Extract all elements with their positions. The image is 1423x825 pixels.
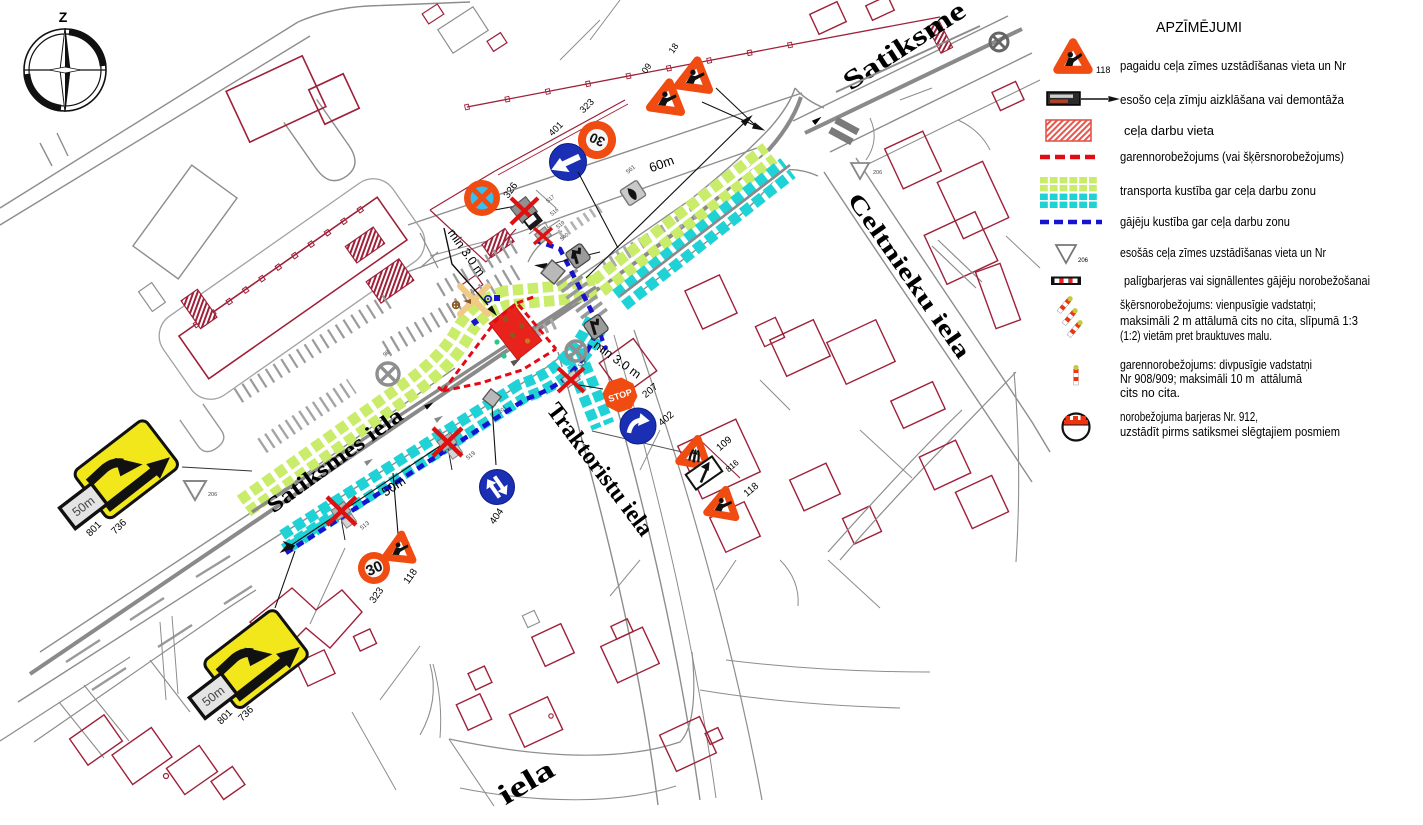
svg-text:maksimāli 2 m attālumā cits no: maksimāli 2 m attālumā cits no cita, slī…: [1120, 313, 1358, 328]
svg-text:uzstādīt pirms satiksmei slēgt: uzstādīt pirms satiksmei slēgtajiem posm…: [1120, 424, 1340, 439]
svg-text:gājēju kustība gar ceļa darbu: gājēju kustība gar ceļa darbu zonu: [1120, 214, 1290, 229]
svg-text:esošo ceļa zīmju aizklāšana va: esošo ceļa zīmju aizklāšana vai demontāž…: [1120, 92, 1345, 107]
svg-text:Z: Z: [59, 9, 68, 25]
svg-text:ceļa darbu vieta: ceļa darbu vieta: [1124, 123, 1215, 138]
svg-text:206: 206: [208, 492, 217, 498]
svg-text:norobežojuma barjeras Nr. 912,: norobežojuma barjeras Nr. 912,: [1120, 409, 1258, 424]
svg-text:cits no cita.: cits no cita.: [1120, 385, 1180, 400]
svg-text:garennorobežojums (vai šķērsno: garennorobežojums (vai šķērsnorobežojums…: [1120, 149, 1344, 164]
svg-text:pagaidu ceļa zīmes uzstādīšana: pagaidu ceļa zīmes uzstādīšanas vieta un…: [1120, 58, 1347, 73]
svg-text:Nr 908/909; maksimāli 10 m at: Nr 908/909; maksimāli 10 m attālumā: [1120, 371, 1303, 386]
svg-text:šķērsnorobežojums: vienpusīgie: šķērsnorobežojums: vienpusīgie vadstatņi…: [1120, 297, 1316, 312]
svg-text:APZĪMĒJUMI: APZĪMĒJUMI: [1156, 20, 1242, 36]
svg-text:118: 118: [1096, 65, 1110, 75]
svg-text:esošās ceļa zīmes uzstādīšanas: esošās ceļa zīmes uzstādīšanas vieta un …: [1120, 245, 1327, 260]
svg-text:transporta kustība gar ceļa da: transporta kustība gar ceļa darbu zonu: [1120, 183, 1316, 198]
svg-text:(1:2) vietām pret brauktuves m: (1:2) vietām pret brauktuves malu.: [1120, 328, 1272, 343]
svg-text:garennorobežojums: divpusīgie: garennorobežojums: divpusīgie vadstatņi: [1120, 357, 1312, 372]
svg-text:206: 206: [1078, 258, 1089, 264]
svg-text:palīgbarjeras vai signāllentes: palīgbarjeras vai signāllentes gājēju no…: [1124, 273, 1370, 288]
svg-text:206: 206: [873, 170, 882, 176]
